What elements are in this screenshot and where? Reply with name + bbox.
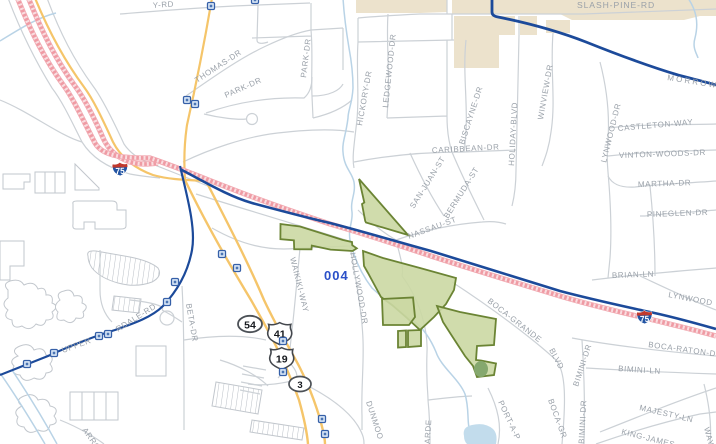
svg-text:75: 75 <box>115 165 125 176</box>
svg-text:SLASH-PINE-RD: SLASH-PINE-RD <box>577 0 655 10</box>
svg-text:Y-RD: Y-RD <box>153 0 175 10</box>
svg-text:75: 75 <box>640 313 650 324</box>
svg-text:3: 3 <box>297 380 302 391</box>
svg-text:004: 004 <box>324 268 349 283</box>
svg-text:MARTHA-DR: MARTHA-DR <box>638 178 692 189</box>
svg-text:ARDE: ARDE <box>423 419 433 444</box>
svg-text:BRIAN-LN: BRIAN-LN <box>612 270 654 280</box>
svg-text:19: 19 <box>276 355 288 366</box>
svg-text:54: 54 <box>244 320 256 332</box>
